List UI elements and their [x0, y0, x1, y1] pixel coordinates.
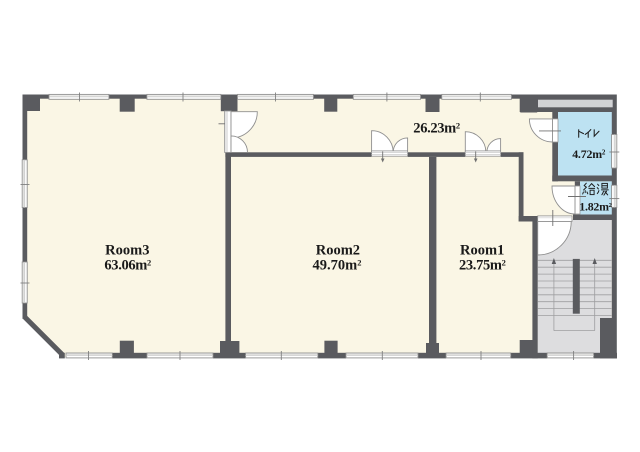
svg-text:Room2: Room2	[316, 243, 360, 259]
svg-text:Room3: Room3	[105, 243, 149, 259]
svg-text:26.23m2: 26.23m2	[413, 121, 460, 137]
svg-text:49.70m2: 49.70m2	[313, 258, 362, 274]
svg-text:23.75m2: 23.75m2	[459, 258, 506, 274]
svg-text:63.06m2: 63.06m2	[104, 258, 151, 274]
svg-text:1.82m2: 1.82m2	[579, 199, 612, 213]
svg-text:Room1: Room1	[460, 243, 504, 259]
svg-text:4.72m2: 4.72m2	[572, 147, 606, 161]
